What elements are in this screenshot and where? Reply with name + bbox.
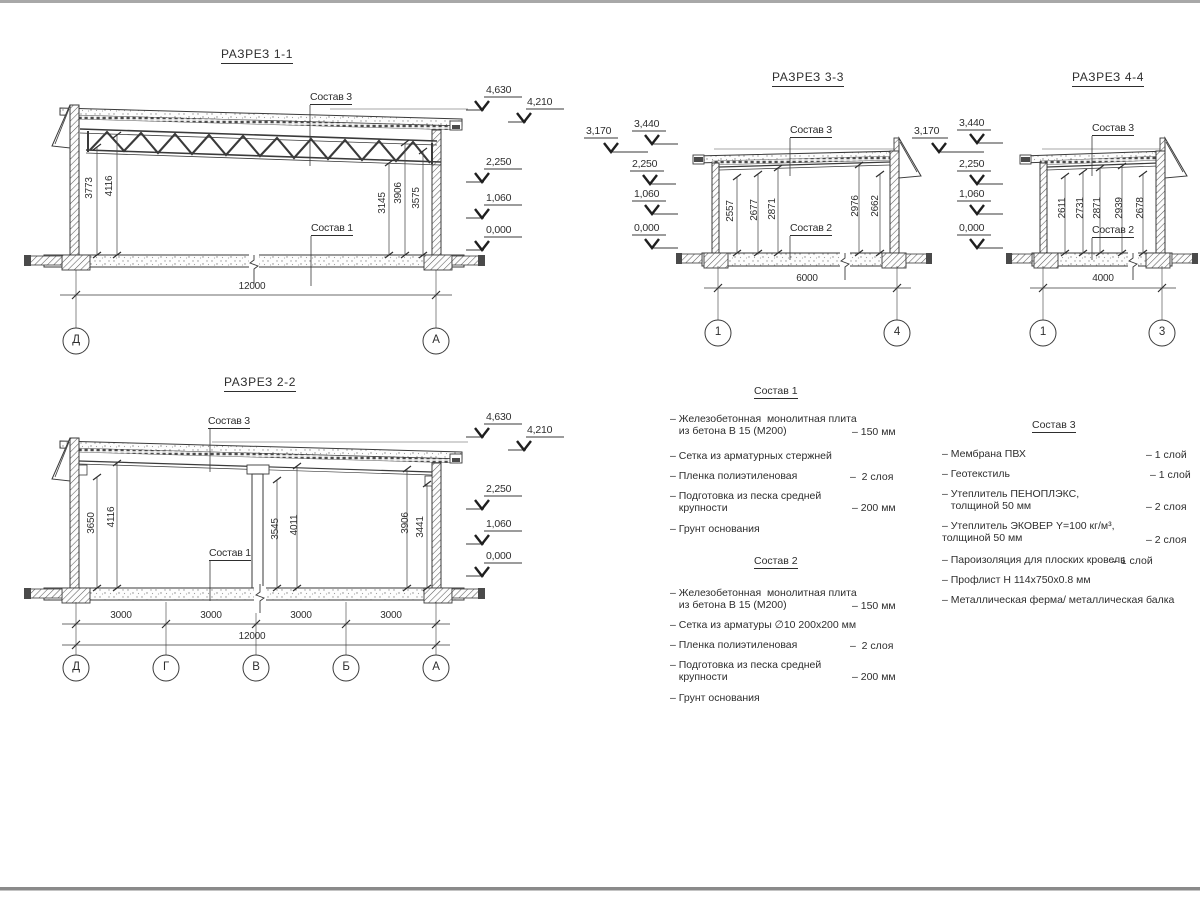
spec-item: – Утеплитель ПЕНОПЛЭКС, толщиной 50 мм <box>942 489 1079 512</box>
dim-height: 3545 <box>270 506 282 552</box>
section-3-3-title: РАЗРЕЗ 3-3 <box>772 70 844 87</box>
dim-total: 12000 <box>227 631 277 642</box>
grid-bubble-label: Б <box>332 661 360 673</box>
foundation-right <box>424 255 452 270</box>
elevation-label: 1,060 <box>959 188 984 200</box>
spec-item-value: – 2 слоя <box>1146 501 1187 513</box>
dim-span: 3000 <box>281 610 321 621</box>
bottom-dimension <box>60 270 452 328</box>
dim-total: 4000 <box>1083 273 1123 284</box>
spec-item-value: – 200 мм <box>852 502 896 514</box>
dim-height: 2976 <box>850 183 862 229</box>
sostav-3-callout: Состав 3 <box>310 91 352 105</box>
spec-block-sostav-2: Состав 2 – Железобетонная монолитная пли… <box>666 552 906 714</box>
spec-item: – Грунт основания <box>670 524 760 536</box>
dim-height: 3773 <box>84 165 96 211</box>
elevation-label: 3,440 <box>634 118 659 130</box>
sostav-2-callout: Состав 2 <box>790 222 832 236</box>
elevation-label: 2,250 <box>632 158 657 170</box>
dim-height: 3906 <box>400 500 412 546</box>
spec-item-value: – 200 мм <box>852 671 896 683</box>
dim-height: 3650 <box>86 500 98 546</box>
spec-item-value: – 2 слоя <box>850 471 893 483</box>
spec-title: Состав 2 <box>754 555 798 569</box>
column-capital <box>247 465 269 474</box>
wall-right <box>1156 151 1165 253</box>
elevation-label: 0,000 <box>486 550 511 562</box>
grid-bubble-label: 1 <box>704 326 732 338</box>
elevation-label: 1,060 <box>634 188 659 200</box>
spec-title: Состав 1 <box>754 385 798 399</box>
section-1-1-linework <box>24 97 564 354</box>
grid-bubble-label: В <box>242 661 270 673</box>
spec-item: – Утеплитель ЭКОВЕР Y=100 кг/м³, толщино… <box>942 521 1115 544</box>
elevation-label: 0,000 <box>634 222 659 234</box>
elevation-label: 3,170 <box>914 125 939 137</box>
floor-slab <box>24 584 485 613</box>
grid-bubble-label: А <box>422 334 450 346</box>
dim-height: 3441 <box>415 504 427 550</box>
elevation-label: 3,170 <box>586 125 611 137</box>
roof-truss <box>80 129 441 165</box>
spec-item: – Пароизоляция для плоских кровель <box>942 555 1126 567</box>
wall-left <box>1040 163 1047 253</box>
elevation-label: 2,250 <box>959 158 984 170</box>
spec-item: – Грунт основания <box>670 693 760 705</box>
sostav-1-callout: Состав 1 <box>209 547 251 561</box>
wall-left <box>70 438 79 588</box>
spec-item: – Пленка полиэтиленовая <box>670 640 797 652</box>
floor-slab <box>24 254 485 284</box>
grid-bubble-label: 3 <box>1148 326 1176 338</box>
dim-height: 4011 <box>289 502 301 548</box>
grid-bubble-label: 1 <box>1029 326 1057 338</box>
dim-span: 3000 <box>101 610 141 621</box>
grid-bubble-label: 4 <box>883 326 911 338</box>
spec-item: – Мембрана ПВХ <box>942 449 1026 461</box>
elevation-label: 0,000 <box>486 224 511 236</box>
column-middle <box>252 474 263 588</box>
spec-item: – Пленка полиэтиленовая <box>670 471 797 483</box>
dim-height: 3575 <box>411 175 423 221</box>
dim-total: 12000 <box>227 281 277 292</box>
spec-item-value: – 150 мм <box>852 600 896 612</box>
sostav-3-callout: Состав 3 <box>208 415 250 429</box>
section-2-2-linework <box>24 424 564 681</box>
dim-height: 2611 <box>1057 185 1069 231</box>
grid-bubbles <box>63 328 449 354</box>
elevation-label: 0,000 <box>959 222 984 234</box>
elevation-label: 1,060 <box>486 518 511 530</box>
spec-item-value: – 1 слой <box>1146 449 1187 461</box>
dim-height: 2662 <box>870 183 882 229</box>
spec-title: Состав 3 <box>1032 419 1076 433</box>
sostav-1-callout: Состав 1 <box>311 222 353 236</box>
elevation-label: 2,250 <box>486 156 511 168</box>
elevation-label: 2,250 <box>486 483 511 495</box>
wall-right <box>432 130 441 257</box>
dim-span: 3000 <box>371 610 411 621</box>
spec-item: – Железобетонная монолитная плита из бет… <box>670 414 857 437</box>
elevation-label: 1,060 <box>486 192 511 204</box>
wall-right <box>890 151 899 253</box>
elevation-marks <box>912 130 1003 248</box>
wall-left <box>70 105 79 257</box>
elevation-label: 3,440 <box>959 117 984 129</box>
elevation-label: 4,630 <box>486 84 511 96</box>
roof-assembly <box>693 151 903 170</box>
elevation-label: 4,210 <box>527 424 552 436</box>
wall-left <box>712 163 719 253</box>
dim-height: 4116 <box>106 494 118 540</box>
wall-right <box>432 463 441 588</box>
spec-block-sostav-3: Состав 3 – Мембрана ПВХ – 1 слой – Геоте… <box>938 416 1194 611</box>
dim-total: 6000 <box>787 273 827 284</box>
elevation-marks <box>466 97 564 250</box>
dim-height: 2731 <box>1075 185 1087 231</box>
dim-height: 2678 <box>1135 185 1147 231</box>
spec-item: – Подготовка из песка средней крупности <box>670 491 821 514</box>
spec-item: – Сетка из арматурных стержней <box>670 451 832 463</box>
grid-bubble-label: Г <box>152 661 180 673</box>
interior-dimension-lines <box>97 135 423 255</box>
grid-bubbles <box>705 320 910 346</box>
grid-bubble-label: А <box>422 661 450 673</box>
elevation-label: 4,630 <box>486 411 511 423</box>
spec-item: – Металлическая ферма/ металлическая бал… <box>942 595 1174 607</box>
sostav-3-callout: Состав 3 <box>790 124 832 138</box>
spec-item-value: – 2 слоя <box>850 640 893 652</box>
spec-item: – Геотекстиль <box>942 469 1010 481</box>
spec-item: – Подготовка из песка средней крупности <box>670 660 821 683</box>
drawing-sheet: РАЗРЕЗ 1-1 Состав 3 Состав 1 3773 4116 3… <box>0 0 1200 900</box>
section-2-2-title: РАЗРЕЗ 2-2 <box>224 375 296 392</box>
dim-height: 2939 <box>1114 185 1126 231</box>
grid-bubble-label: Д <box>62 661 90 673</box>
elevation-label: 4,210 <box>527 96 552 108</box>
spec-item-value: – 150 мм <box>852 426 896 438</box>
dim-height: 3906 <box>393 170 405 216</box>
dim-height: 4116 <box>104 163 116 209</box>
foundation-left <box>62 255 90 270</box>
section-4-4-linework <box>912 130 1198 346</box>
roof-assembly <box>60 108 462 130</box>
spec-item: – Железобетонная монолитная плита из бет… <box>670 588 857 611</box>
elevation-marks <box>466 424 564 576</box>
grid-bubble-label: Д <box>62 334 90 346</box>
corbel-left <box>79 465 87 475</box>
dim-height: 2871 <box>1092 185 1104 231</box>
dim-height: 2677 <box>749 187 761 233</box>
dim-height: 3145 <box>377 180 389 226</box>
spec-item: – Профлист Н 114х750х0.8 мм <box>942 575 1091 587</box>
spec-block-sostav-1: Состав 1 – Железобетонная монолитная пли… <box>666 382 906 544</box>
spec-item-value: – 2 слоя <box>1146 534 1187 546</box>
dim-span: 3000 <box>191 610 231 621</box>
spec-item-value: – 1 слой <box>1112 555 1153 567</box>
section-1-1-title: РАЗРЕЗ 1-1 <box>221 47 293 64</box>
spec-item-value: – 1 слой <box>1150 469 1191 481</box>
section-4-4-title: РАЗРЕЗ 4-4 <box>1072 70 1144 87</box>
dim-height: 2871 <box>767 186 779 232</box>
spec-item: – Сетка из арматуры ∅10 200х200 мм <box>670 620 856 632</box>
elevation-marks <box>584 131 678 248</box>
sostav-3-callout: Состав 3 <box>1092 122 1134 136</box>
dim-height: 2557 <box>725 188 737 234</box>
